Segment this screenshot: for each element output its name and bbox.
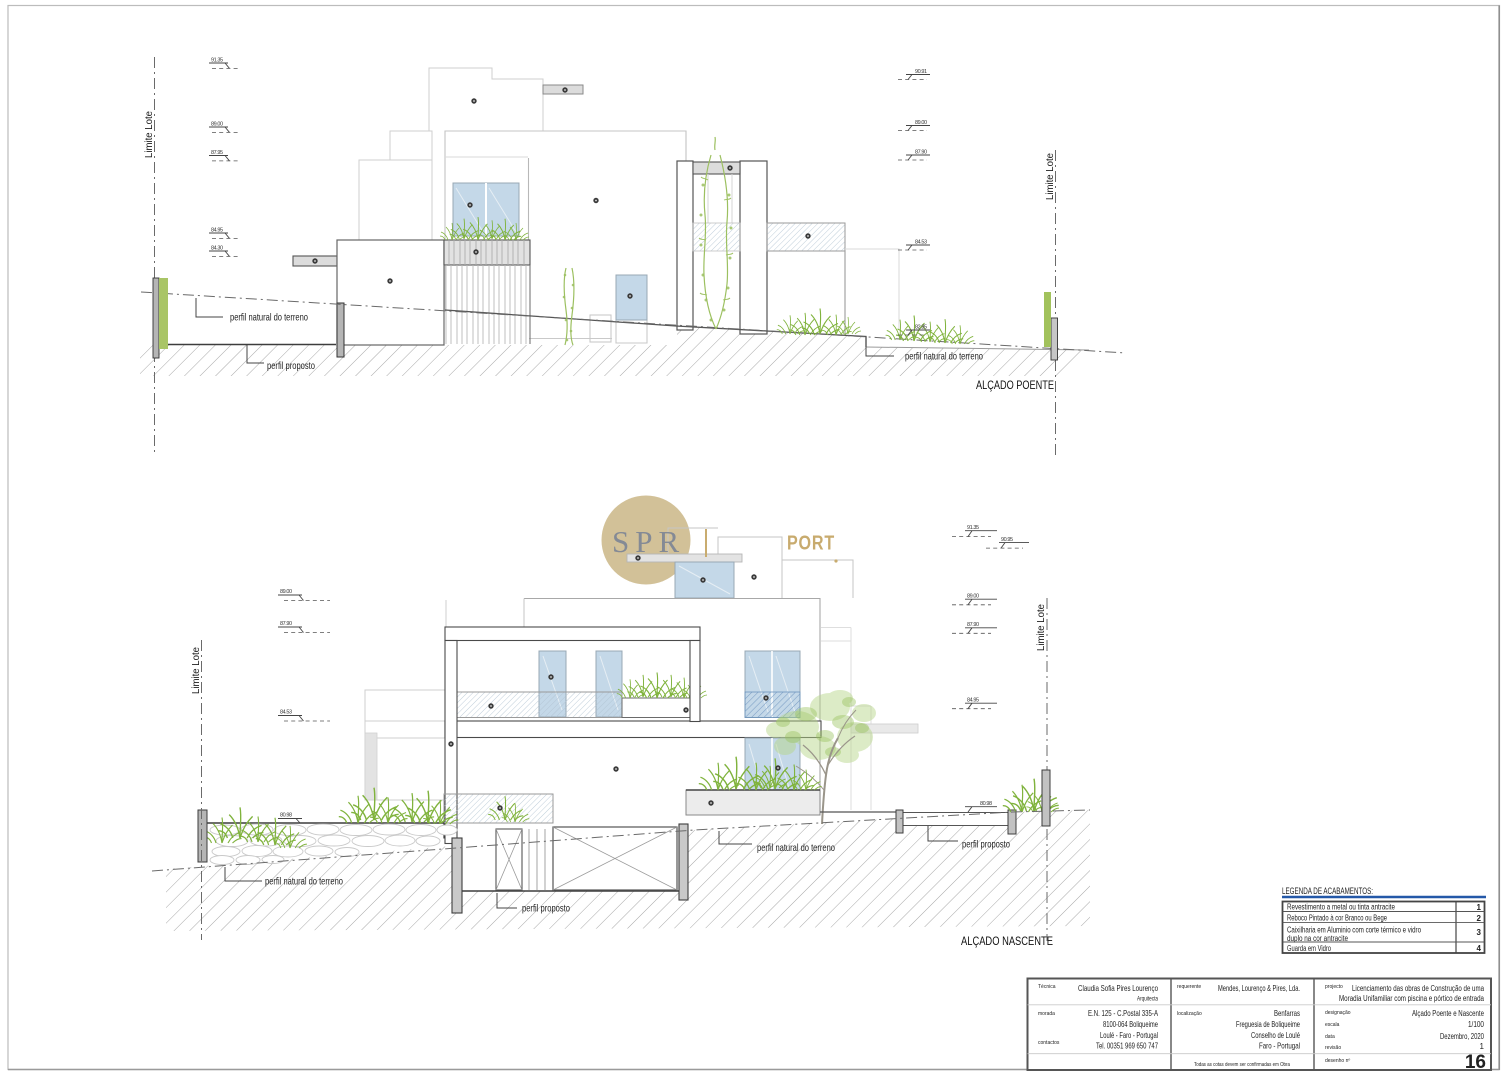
svg-text:LEGENDA DE ACABAMENTOS:: LEGENDA DE ACABAMENTOS:	[1282, 886, 1373, 897]
svg-text:requerente: requerente	[1177, 984, 1201, 990]
svg-text:Reboco Pintado à cor Branco ou: Reboco Pintado à cor Branco ou Bege	[1287, 914, 1387, 923]
svg-text:87.90: 87.90	[967, 622, 979, 628]
svg-text:revisão: revisão	[1325, 1045, 1341, 1051]
svg-text:Guarda em Vidro: Guarda em Vidro	[1287, 944, 1331, 953]
svg-text:perfil natural do terreno: perfil natural do terreno	[905, 351, 983, 363]
svg-text:80.98: 80.98	[280, 813, 292, 819]
svg-text:Benfarras: Benfarras	[1274, 1008, 1300, 1018]
svg-text:Técnica: Técnica	[1038, 984, 1056, 990]
svg-text:4: 4	[1477, 944, 1482, 953]
svg-text:8100-064 Boliqueime: 8100-064 Boliqueime	[1103, 1019, 1158, 1029]
svg-text:Claudia Sofia Pires Lourenço: Claudia Sofia Pires Lourenço	[1078, 983, 1158, 993]
svg-text:desenho nº: desenho nº	[1325, 1058, 1350, 1064]
svg-text:Faro - Portugal: Faro - Portugal	[1259, 1041, 1300, 1051]
svg-text:perfil natural do terreno: perfil natural do terreno	[265, 876, 343, 888]
svg-text:PORT: PORT	[787, 533, 835, 555]
svg-text:Limite Lote: Limite Lote	[1044, 153, 1056, 200]
svg-text:contactos: contactos	[1038, 1040, 1060, 1046]
svg-text:89.00: 89.00	[967, 594, 979, 600]
svg-text:Licenciamento das obras de Con: Licenciamento das obras de Construção de…	[1352, 984, 1484, 993]
svg-text:data: data	[1325, 1034, 1335, 1040]
svg-text:84.95: 84.95	[211, 228, 223, 234]
svg-text:perfil proposto: perfil proposto	[522, 903, 570, 915]
svg-text:localização: localização	[1177, 1011, 1202, 1017]
svg-text:perfil natural do terreno: perfil natural do terreno	[230, 312, 308, 324]
svg-text:1/100: 1/100	[1468, 1020, 1484, 1029]
svg-text:87.90: 87.90	[915, 150, 927, 156]
svg-text:morada: morada	[1038, 1011, 1055, 1017]
svg-text:E.N. 125 - C.Postal 335-A: E.N. 125 - C.Postal 335-A	[1088, 1008, 1158, 1018]
svg-text:90.95: 90.95	[1001, 537, 1013, 543]
svg-text:90.91: 90.91	[915, 69, 927, 75]
svg-text:91.35: 91.35	[967, 525, 979, 531]
svg-text:1: 1	[1480, 1042, 1485, 1051]
svg-text:perfil proposto: perfil proposto	[267, 360, 315, 372]
svg-text:perfil proposto: perfil proposto	[962, 839, 1010, 851]
svg-text:87.95: 87.95	[211, 150, 223, 156]
svg-text:84.95: 84.95	[967, 698, 979, 704]
svg-text:Arquitecta: Arquitecta	[1137, 996, 1158, 1003]
svg-text:ALÇADO NASCENTE: ALÇADO NASCENTE	[961, 936, 1053, 948]
svg-text:Alçado Poente e Nascente: Alçado Poente e Nascente	[1412, 1009, 1484, 1018]
svg-text:Conselho de Loulé: Conselho de Loulé	[1251, 1030, 1300, 1040]
svg-text:89.00: 89.00	[915, 120, 927, 126]
svg-text:ALÇADO POENTE: ALÇADO POENTE	[976, 380, 1054, 392]
svg-text:89.00: 89.00	[280, 589, 292, 595]
svg-text:91.35: 91.35	[211, 58, 223, 64]
svg-text:3: 3	[1477, 928, 1482, 937]
svg-text:84.53: 84.53	[915, 240, 927, 246]
svg-text:Loulé - Faro - Portugal: Loulé - Faro - Portugal	[1100, 1030, 1158, 1040]
svg-text:projecto: projecto	[1325, 984, 1343, 990]
svg-text:Limite Lote: Limite Lote	[1035, 604, 1047, 651]
svg-text:Limite Lote: Limite Lote	[190, 647, 202, 694]
svg-text:Mendes, Lourenço & Pires, Lda.: Mendes, Lourenço & Pires, Lda.	[1218, 983, 1300, 993]
svg-text:Limite Lote: Limite Lote	[143, 111, 155, 158]
svg-text:87.90: 87.90	[280, 621, 292, 627]
svg-text:1: 1	[1477, 903, 1482, 912]
svg-text:Revestimento a metal ou tinta: Revestimento a metal ou tinta antracite	[1287, 903, 1395, 912]
svg-text:duplo na cor antracite: duplo na cor antracite	[1287, 934, 1348, 943]
svg-text:82.85: 82.85	[915, 325, 927, 331]
svg-text:84.53: 84.53	[280, 710, 292, 716]
svg-text:89.00: 89.00	[211, 122, 223, 128]
svg-text:designação: designação	[1325, 1010, 1351, 1016]
svg-text:Moradia Unifamiliar com piscin: Moradia Unifamiliar com piscina e pórtic…	[1339, 994, 1484, 1003]
svg-text:Tel. 00351 969 650 747: Tel. 00351 969 650 747	[1096, 1041, 1158, 1051]
svg-text:Freguesia de Boliqueime: Freguesia de Boliqueime	[1236, 1019, 1300, 1029]
svg-text:2: 2	[1477, 914, 1482, 923]
svg-text:escala: escala	[1325, 1022, 1340, 1028]
svg-text:SPR: SPR	[612, 524, 685, 559]
svg-text:80.98: 80.98	[980, 801, 992, 807]
svg-text:Todas as cotas devem ser confi: Todas as cotas devem ser confirmadas em …	[1194, 1062, 1291, 1068]
svg-text:perfil natural do terreno: perfil natural do terreno	[757, 842, 835, 854]
svg-text:16: 16	[1465, 1052, 1486, 1073]
svg-text:Dezembro, 2020: Dezembro, 2020	[1440, 1032, 1484, 1041]
svg-text:84.30: 84.30	[211, 246, 223, 252]
